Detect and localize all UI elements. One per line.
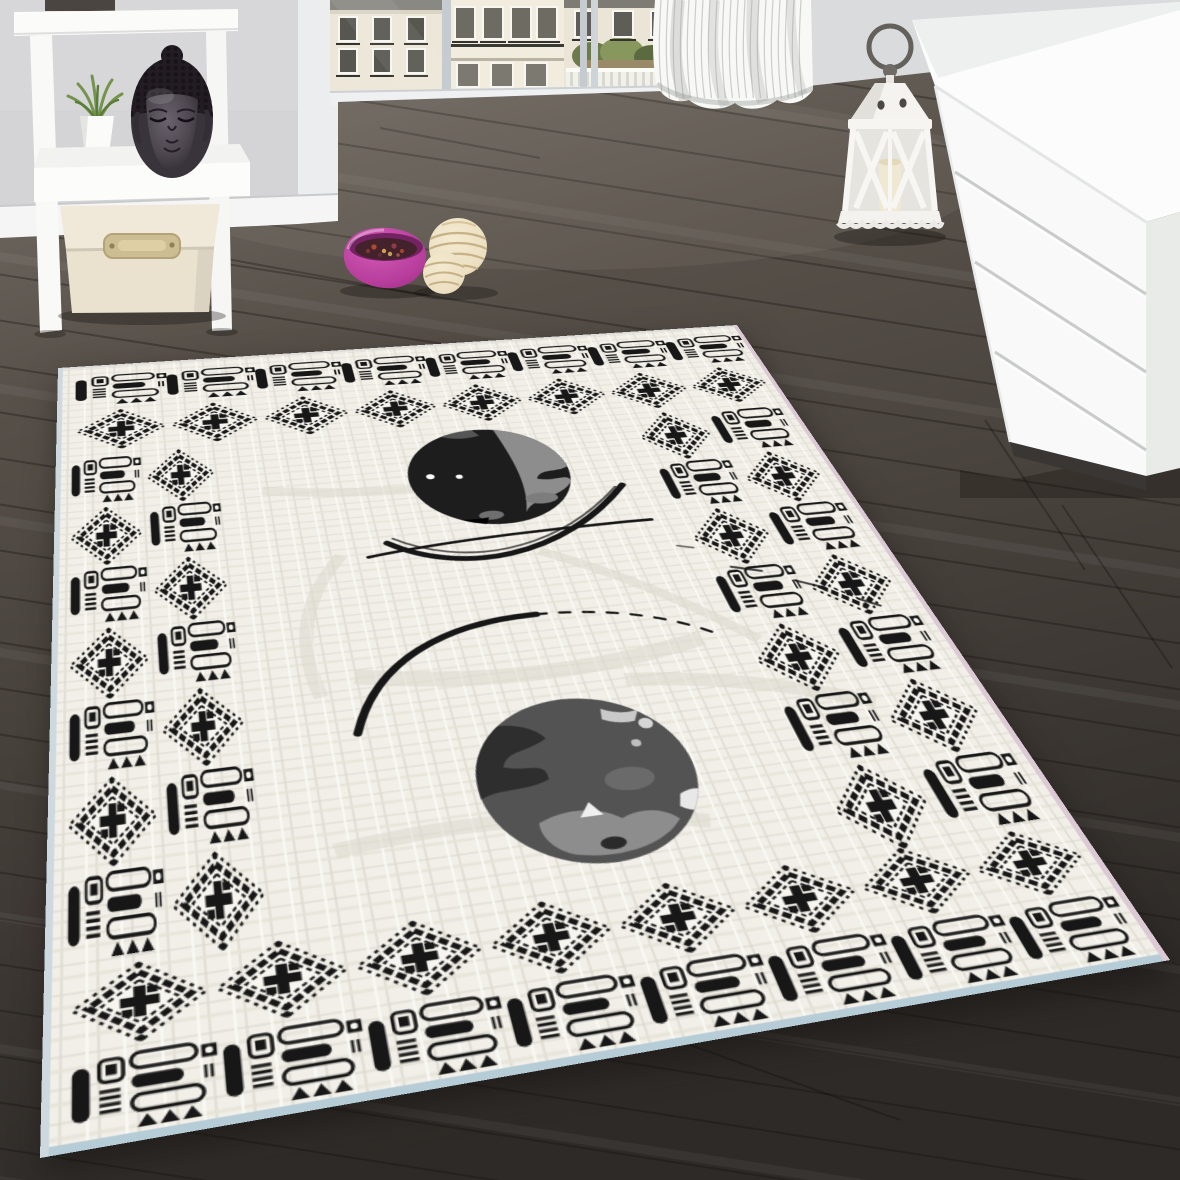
rug-perspective-wrap xyxy=(0,0,1180,1180)
rug xyxy=(40,325,1170,1158)
room-scene xyxy=(0,0,1180,1180)
